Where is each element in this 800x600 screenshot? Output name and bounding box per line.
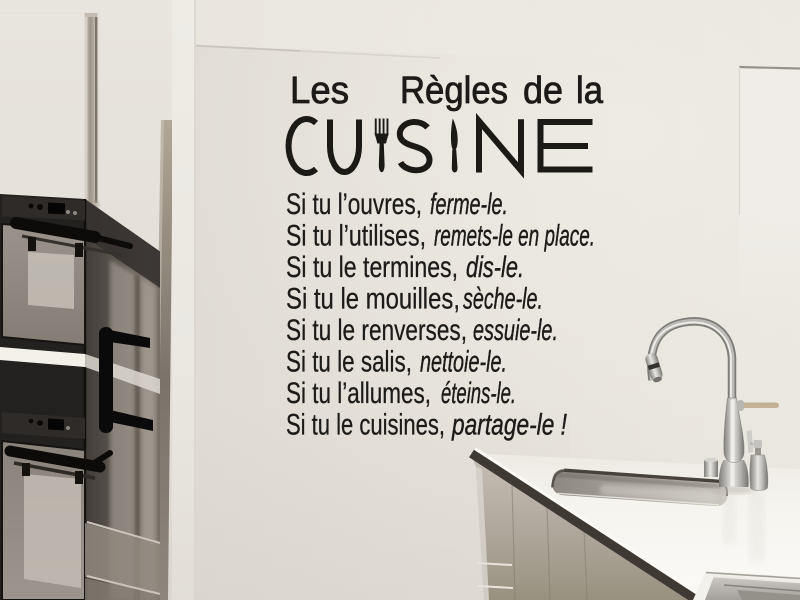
svg-text:essuie-le.: essuie-le. — [473, 314, 558, 347]
svg-text:Règles: Règles — [400, 70, 508, 112]
svg-text:Si tu le termines,: Si tu le termines, — [286, 251, 458, 284]
svg-text:remets-le en place.: remets-le en place. — [434, 220, 595, 253]
svg-text:Si tu l’utilises,: Si tu l’utilises, — [286, 220, 426, 253]
svg-text:dis-le.: dis-le. — [466, 251, 524, 284]
svg-text:Si tu l’ouvres,: Si tu l’ouvres, — [286, 188, 422, 221]
svg-text:Si tu l’allumes,: Si tu l’allumes, — [286, 377, 431, 410]
svg-text:éteins-le.: éteins-le. — [441, 377, 516, 410]
svg-text:de: de — [523, 70, 563, 112]
svg-text:Si tu le salis,: Si tu le salis, — [286, 346, 412, 379]
svg-text:nettoie-le.: nettoie-le. — [420, 346, 507, 379]
svg-text:Les: Les — [290, 70, 349, 112]
svg-text:ferme-le.: ferme-le. — [430, 188, 508, 221]
svg-text:la: la — [576, 70, 604, 112]
svg-text:sèche-le.: sèche-le. — [463, 283, 543, 316]
svg-text:Si tu le renverses,: Si tu le renverses, — [286, 314, 467, 347]
svg-text:Si tu le mouilles,: Si tu le mouilles, — [286, 283, 460, 316]
svg-text:Si tu le cuisines,: Si tu le cuisines, — [286, 409, 445, 442]
svg-text:partage-le !: partage-le ! — [451, 409, 567, 442]
